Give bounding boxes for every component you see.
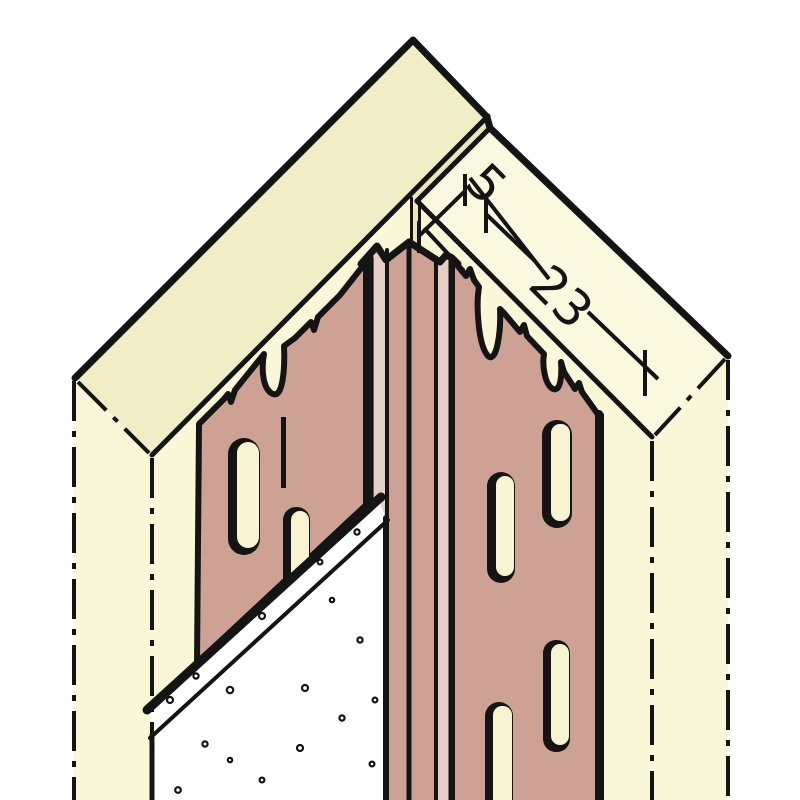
right-flange-slot-3 <box>551 644 569 745</box>
right-flange-slot-4 <box>493 706 512 800</box>
right-flange-slot-1 <box>551 424 570 521</box>
illustration-canvas: 5 23 <box>0 0 800 800</box>
channel-highlight-strip-right <box>438 258 449 800</box>
left-flange-score-mark <box>281 417 286 488</box>
left-flange-slot-1 <box>237 442 259 548</box>
right-flange-slot-2 <box>496 476 514 576</box>
profile-diagram: 5 23 <box>0 0 800 800</box>
